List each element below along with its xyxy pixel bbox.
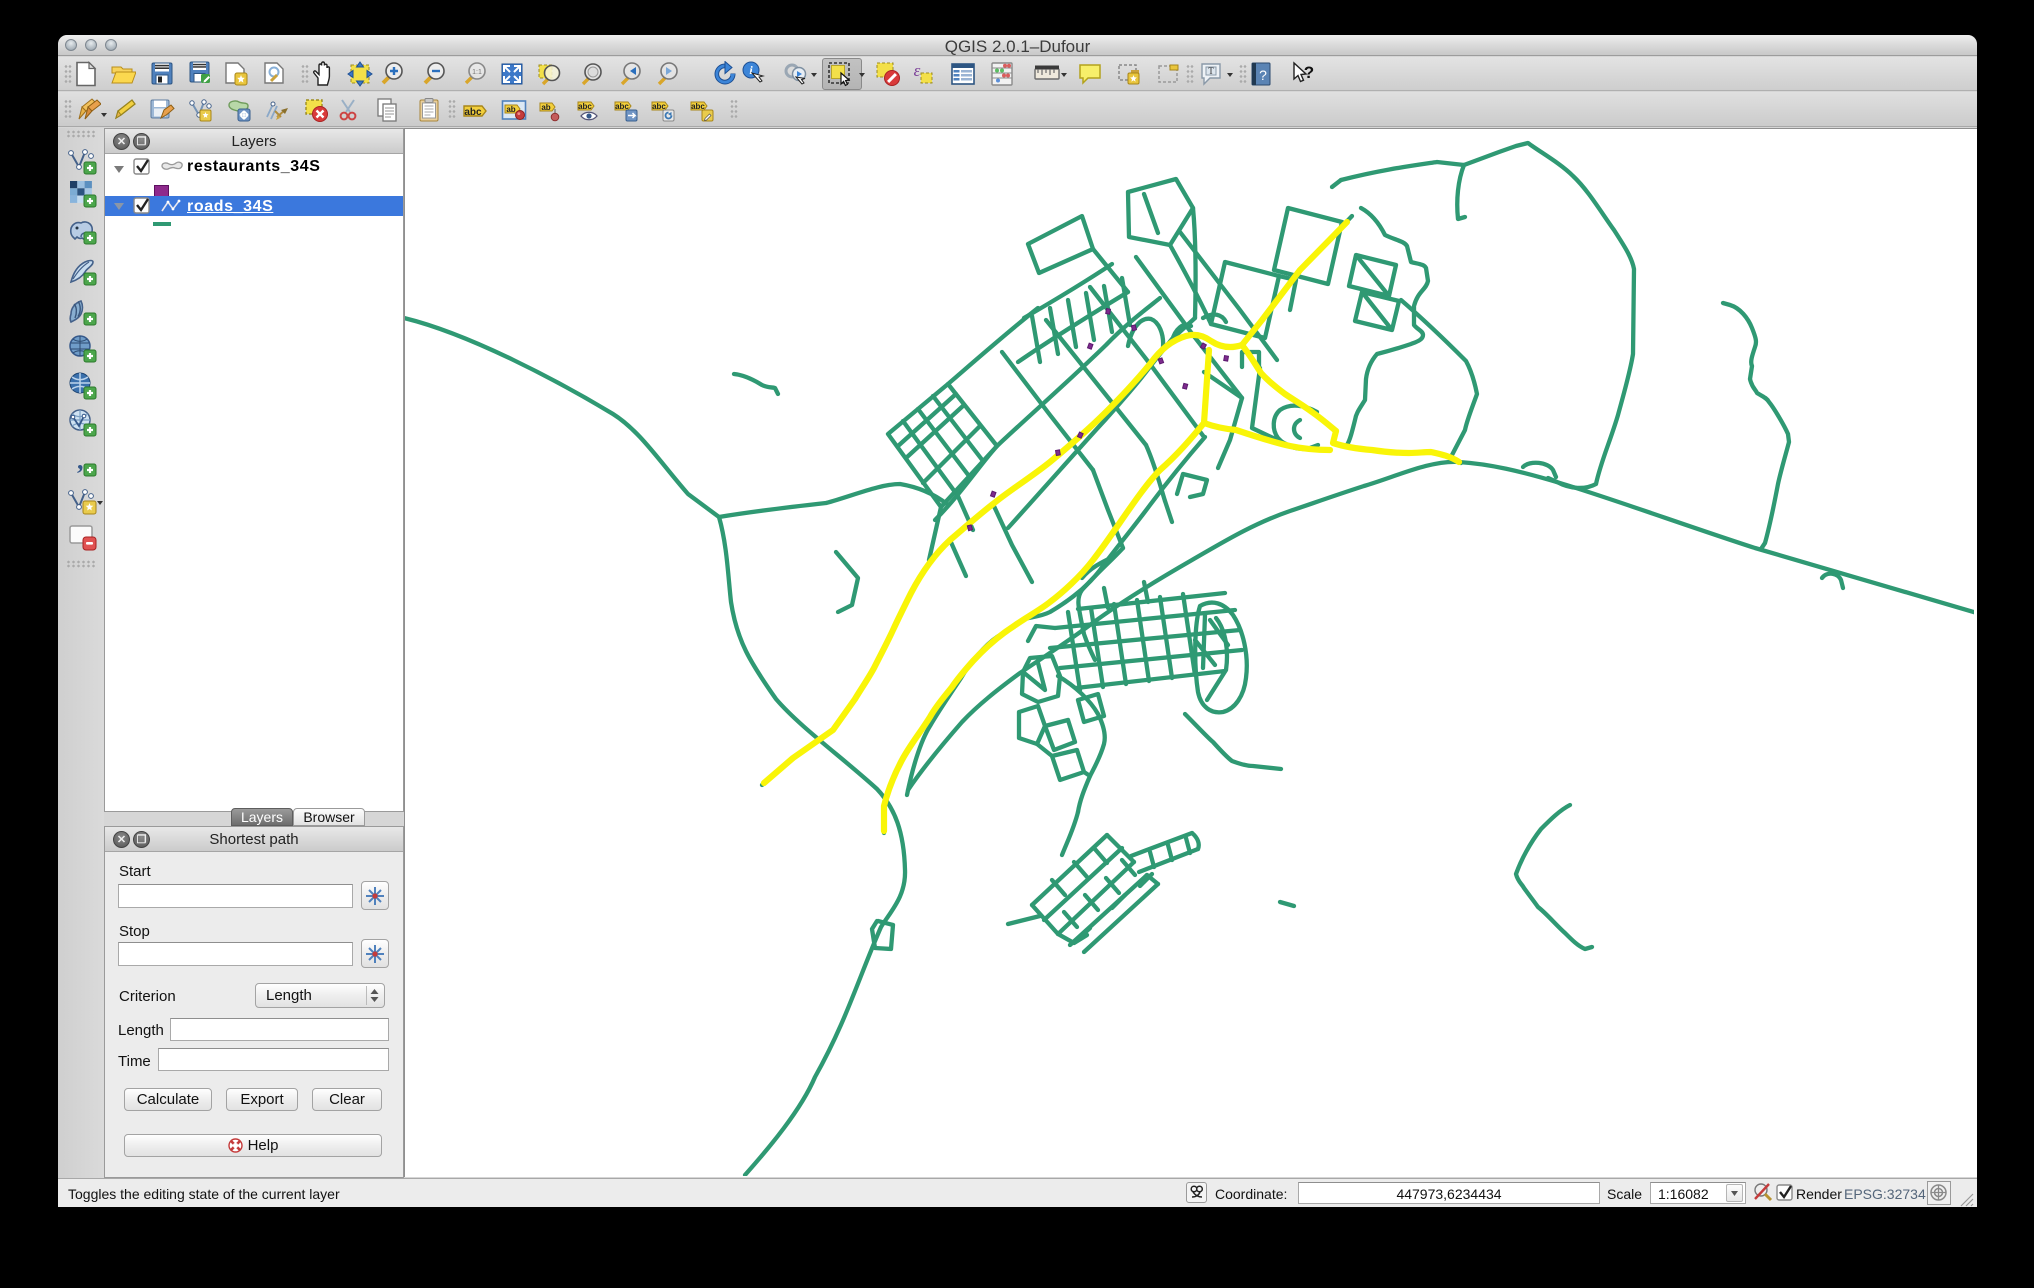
svg-text:ab: ab — [506, 105, 515, 114]
svg-text:,: , — [77, 447, 84, 475]
svg-text:T: T — [1208, 66, 1214, 76]
svg-text:abc: abc — [578, 102, 592, 111]
svg-text:?: ? — [1304, 63, 1314, 82]
svg-text:1:1: 1:1 — [472, 69, 482, 76]
svg-text:ab: ab — [541, 103, 550, 112]
svg-text:ε: ε — [914, 61, 921, 80]
svg-text:abc: abc — [464, 107, 482, 118]
svg-text:?: ? — [1259, 67, 1267, 83]
